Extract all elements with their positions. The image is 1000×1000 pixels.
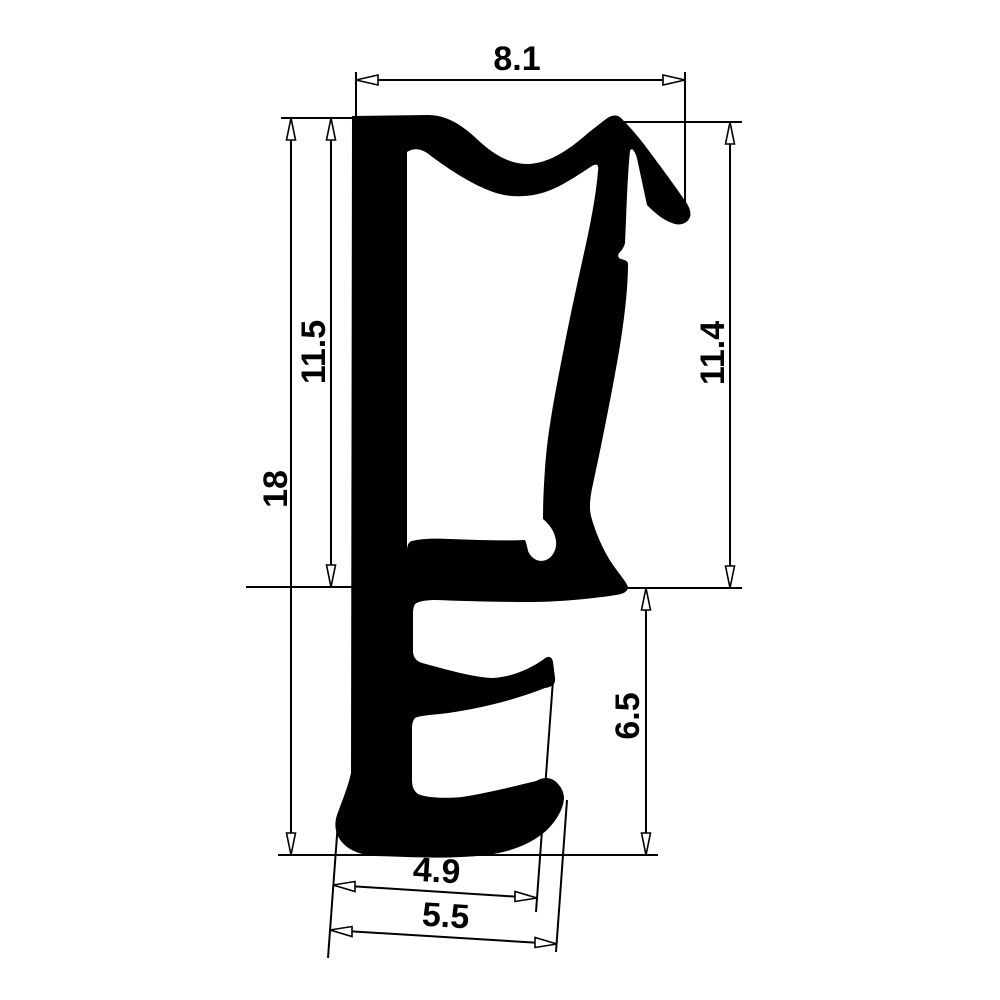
arrowhead-down-icon (642, 833, 651, 855)
arrowhead-right-icon (535, 938, 557, 948)
dimension-right-height: 11.4 (694, 122, 735, 588)
arrowhead-down-icon (726, 566, 735, 588)
dimension-inner-height-left: 11.5 (295, 118, 336, 587)
extension-line (556, 800, 567, 952)
dimension-top-width: 8.1 (356, 40, 685, 85)
dimension-label: 18 (257, 470, 295, 508)
dimension-label: 11.4 (694, 321, 732, 385)
arrowhead-up-icon (726, 122, 735, 144)
dimension-overall-height: 18 (257, 118, 296, 855)
dimension-label: 6.5 (609, 692, 647, 739)
arrowhead-left-icon (356, 75, 378, 85)
seal-profile-silhouette (335, 115, 690, 858)
arrowhead-up-icon (327, 118, 336, 140)
dimension-label: 4.9 (412, 851, 462, 892)
arrowhead-left-icon (333, 882, 355, 892)
dimension-bottom-inner-width: 4.9 (333, 851, 537, 902)
arrowhead-right-icon (663, 75, 685, 85)
arrowhead-left-icon (330, 927, 352, 937)
arrowhead-right-icon (515, 892, 537, 902)
technical-drawing: 8.1 18 11.5 11.4 6.5 4.9 5 (0, 0, 1000, 1000)
extension-line (328, 822, 338, 958)
arrowhead-down-icon (287, 833, 296, 855)
arrowhead-down-icon (327, 565, 336, 587)
dimension-label: 11.5 (295, 320, 333, 384)
drawing-canvas: 8.1 18 11.5 11.4 6.5 4.9 5 (0, 0, 1000, 1000)
dimension-label: 5.5 (421, 896, 471, 937)
dimension-lower-right-height: 6.5 (609, 588, 651, 855)
arrowhead-up-icon (642, 588, 651, 610)
arrowhead-up-icon (287, 118, 296, 140)
dimension-label: 8.1 (493, 40, 540, 78)
dimension-bottom-outer-width: 5.5 (330, 896, 557, 948)
